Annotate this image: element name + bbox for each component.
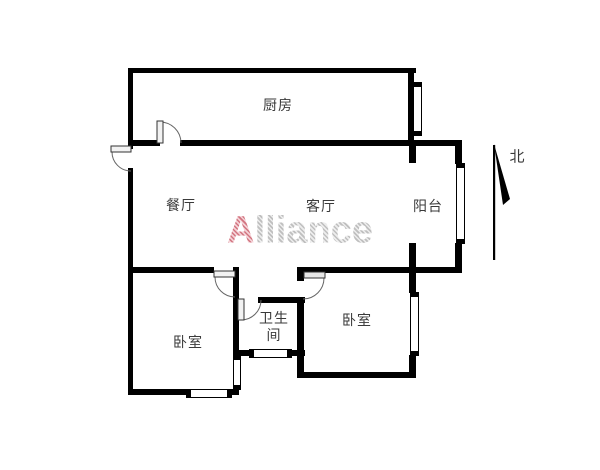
window-bedroom-right-icon xyxy=(411,293,419,356)
wall-bathroom-right xyxy=(297,297,304,378)
watermark-rest: lliance xyxy=(255,210,373,252)
north-label: 北 xyxy=(509,146,524,167)
wall-main-top-right xyxy=(180,140,462,146)
wall-balcony-divider-bottom xyxy=(409,243,416,267)
door-bedroom-right-icon xyxy=(303,272,325,299)
wall-main-top-left xyxy=(128,140,160,146)
wall-bedroom-left-bottom-a xyxy=(128,389,189,395)
wall-balcony-right-bottom xyxy=(455,243,462,273)
wall-kitchen-top xyxy=(128,68,416,73)
room-label-dining: 餐厅 xyxy=(166,195,196,215)
north-arrow-icon xyxy=(493,144,510,260)
door-kitchen-icon xyxy=(157,121,181,143)
wall-kitchen-left xyxy=(128,68,133,149)
door-bedroom-left-icon xyxy=(214,271,235,297)
wall-balcony-divider-top xyxy=(409,146,416,163)
room-label-balcony: 阳台 xyxy=(413,196,443,216)
window-bathroom-icon xyxy=(250,350,292,358)
room-label-kitchen: 厨房 xyxy=(263,95,293,115)
watermark-first-letter: A xyxy=(227,210,254,252)
window-kitchen-icon xyxy=(414,83,422,136)
wall-bedroom-right-side-b xyxy=(409,355,416,373)
room-label-bedroom-right: 卧室 xyxy=(342,310,372,330)
wall-bedroom-right-bottom xyxy=(300,372,416,378)
wall-bedroom-right-door-stub xyxy=(297,273,304,281)
wall-bedroom-right-side-a xyxy=(409,273,416,293)
room-label-bedroom-left: 卧室 xyxy=(173,332,203,352)
wall-left-outer xyxy=(128,168,133,394)
wall-balcony-right-top xyxy=(455,140,462,164)
room-label-bathroom: 卫生间 xyxy=(256,311,292,345)
window-balcony-icon xyxy=(457,164,465,244)
door-entry-icon xyxy=(111,146,131,171)
window-bedroom-left-side-icon xyxy=(234,356,241,390)
watermark: Alliance xyxy=(227,210,373,253)
wall-main-bottom-left xyxy=(128,267,214,273)
window-bedroom-left-bottom-icon xyxy=(187,390,232,398)
floorplan-page: 厨房 餐厅 客厅 阳台 卧室 卧室 卫生间 北 Alliance xyxy=(0,0,600,470)
